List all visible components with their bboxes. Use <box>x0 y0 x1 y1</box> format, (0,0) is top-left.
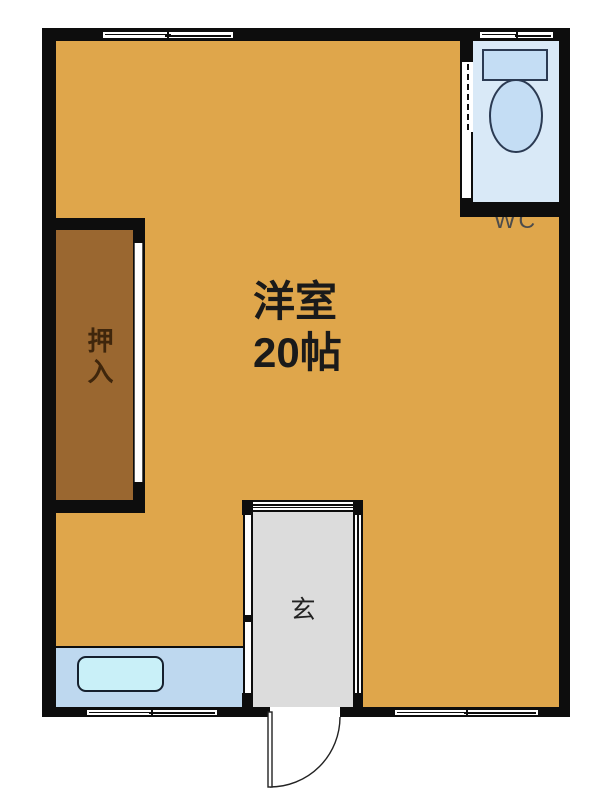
wc-partition-lower <box>460 132 473 198</box>
window-tick <box>516 30 518 39</box>
toilet-tank <box>483 50 547 80</box>
entrance-post-top-right <box>353 500 363 515</box>
door-leaf <box>268 712 272 787</box>
entrance-label: 玄 <box>253 590 353 626</box>
door-arc <box>270 717 340 787</box>
main-room-size: 20帖 <box>253 327 342 378</box>
entrance-post-bottom-right <box>353 693 363 707</box>
entrance-sliding-door-top <box>253 500 353 512</box>
entrance-partition-left <box>243 515 253 693</box>
entrance-post-bottom-left <box>242 693 253 707</box>
entrance-partition-right <box>353 515 363 693</box>
window-top-right <box>480 30 553 40</box>
partition-tick <box>243 615 253 622</box>
main-room-label: 洋室 20帖 <box>253 276 342 378</box>
window-tick <box>167 30 169 39</box>
wall-right <box>559 28 570 717</box>
closet-wall-bottom <box>42 500 145 513</box>
bathtub-icon <box>77 656 164 692</box>
wc-wall-left-post <box>460 198 473 217</box>
closet-sliding-door <box>134 243 143 482</box>
toilet-bowl <box>490 80 542 152</box>
entrance-post-top-left <box>242 500 253 515</box>
closet-label: 押入 <box>81 327 118 389</box>
closet-wall-top <box>42 218 145 230</box>
wc-wall-bottom <box>460 202 559 217</box>
wc-wall-left-stub <box>460 41 473 62</box>
window-tick <box>466 708 468 717</box>
window-bottom-right <box>395 708 538 717</box>
entry-door-swing <box>260 705 350 800</box>
window-tick <box>151 708 153 717</box>
wc-room: WC <box>473 41 559 202</box>
floor-plan: WC 押入 玄 洋室 20帖 <box>0 0 616 800</box>
partition-mid-line <box>357 515 359 693</box>
main-room-name: 洋室 <box>253 276 342 327</box>
toilet-icon <box>473 41 559 202</box>
window-bottom-left <box>87 708 217 717</box>
wc-folding-door <box>460 62 473 132</box>
wall-left <box>42 28 56 717</box>
window-top-left <box>103 30 233 40</box>
